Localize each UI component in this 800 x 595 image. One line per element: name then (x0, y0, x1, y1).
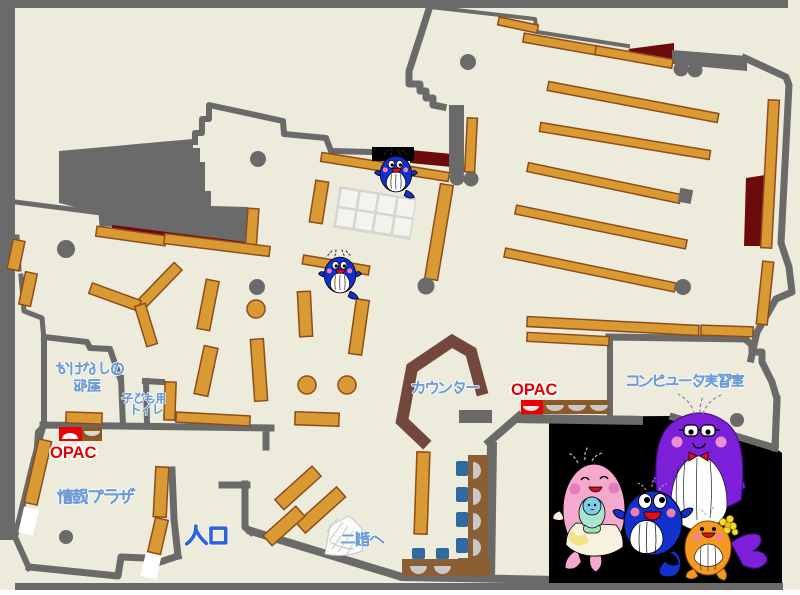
svg-text:OPAC: OPAC (511, 381, 558, 399)
svg-text:OPAC: OPAC (50, 444, 97, 462)
